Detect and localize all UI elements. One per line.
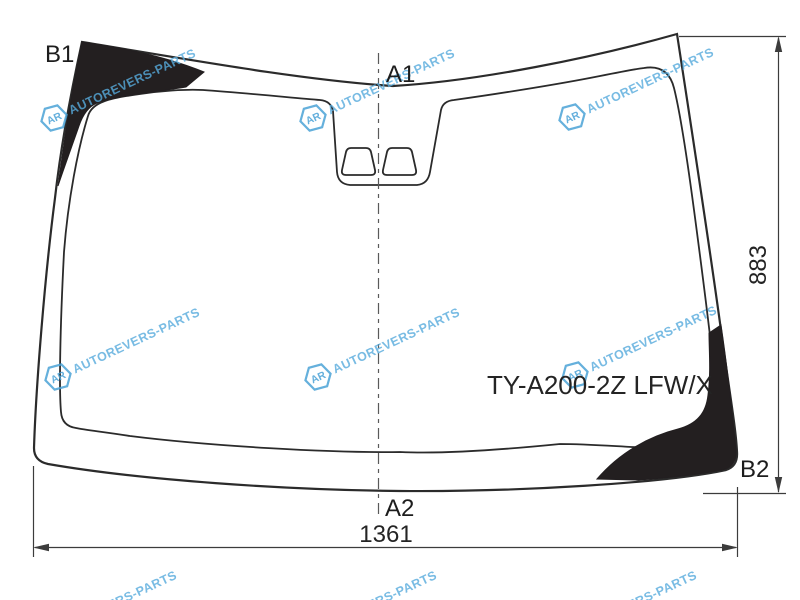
watermark: [18, 563, 181, 600]
part-number: TY-A200-2Z LFW/X: [487, 370, 713, 400]
height-arrow-up: [775, 36, 782, 52]
watermark: [296, 41, 459, 134]
label-a2: A2: [385, 495, 414, 522]
width-arrow-right: [722, 544, 738, 551]
sensor-window-left: [342, 148, 375, 175]
watermark: [41, 300, 204, 393]
label-b2: B2: [740, 456, 769, 483]
label-b1: B1: [45, 41, 74, 68]
sensor-window-right: [383, 148, 416, 175]
watermark: [538, 563, 701, 600]
windshield-diagram: AR AUTOREVERS-PARTS: [0, 0, 800, 600]
width-value: 1361: [359, 521, 412, 548]
windshield-outer-edge: [34, 34, 737, 491]
watermark: [278, 563, 441, 600]
windshield-drawing-page: AR AUTOREVERS-PARTS: [0, 0, 800, 600]
height-arrow-down: [775, 477, 782, 493]
height-value: 883: [745, 245, 772, 285]
watermark: [301, 300, 464, 393]
label-a1: A1: [386, 61, 415, 88]
width-arrow-left: [33, 544, 49, 551]
watermark-layer: [18, 40, 721, 600]
watermark: [555, 40, 718, 133]
